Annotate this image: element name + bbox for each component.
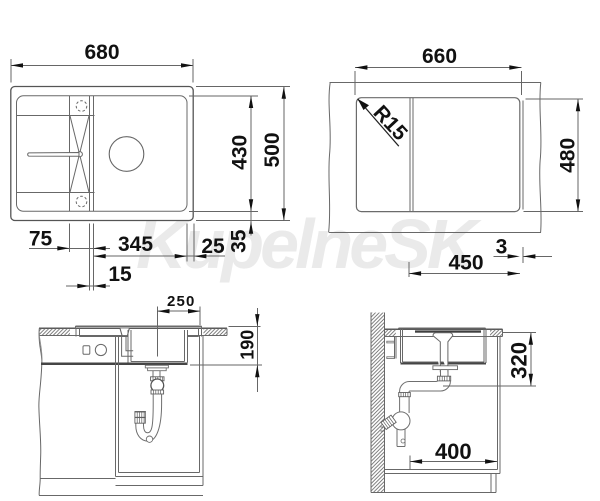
svg-text:3: 3 [496, 236, 508, 259]
svg-text:450: 450 [448, 252, 483, 275]
svg-text:320: 320 [507, 342, 532, 379]
svg-text:35: 35 [227, 229, 250, 253]
svg-text:15: 15 [108, 263, 132, 286]
svg-text:400: 400 [435, 439, 472, 464]
svg-text:345: 345 [118, 233, 153, 256]
svg-text:660: 660 [422, 45, 457, 68]
svg-text:430: 430 [229, 135, 252, 170]
svg-text:480: 480 [557, 138, 580, 173]
svg-text:680: 680 [84, 41, 119, 64]
svg-text:190: 190 [237, 330, 257, 360]
svg-text:25: 25 [201, 235, 225, 258]
svg-text:500: 500 [261, 132, 284, 167]
svg-text:75: 75 [29, 228, 53, 251]
svg-text:250: 250 [167, 293, 196, 310]
svg-text:KupelneSK: KupelneSK [136, 205, 482, 283]
